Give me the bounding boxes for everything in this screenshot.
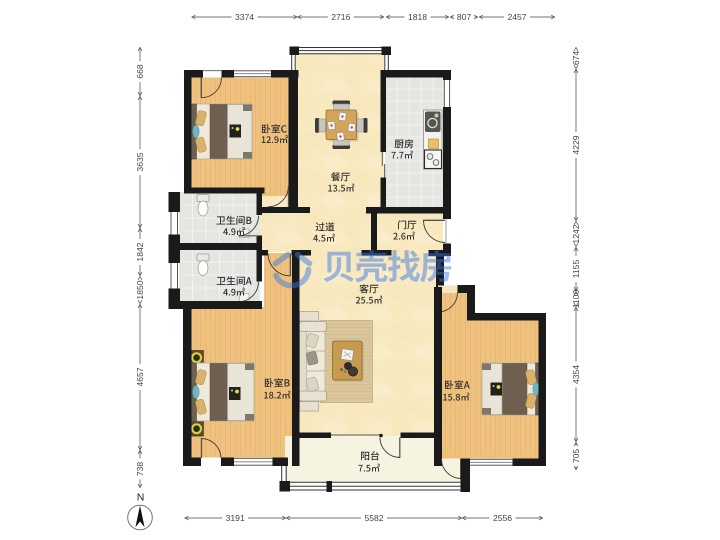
svg-text:3191: 3191	[226, 513, 245, 523]
svg-text:1842: 1842	[135, 242, 145, 261]
svg-text:4229: 4229	[571, 135, 581, 154]
svg-text:N: N	[137, 492, 145, 504]
svg-text:807: 807	[457, 12, 472, 22]
svg-text:4354: 4354	[571, 365, 581, 384]
svg-text:738: 738	[135, 462, 145, 477]
svg-text:2716: 2716	[331, 12, 350, 22]
svg-text:4657: 4657	[135, 367, 145, 386]
svg-text:3635: 3635	[135, 152, 145, 171]
svg-text:2556: 2556	[493, 513, 512, 523]
svg-text:705: 705	[571, 449, 581, 464]
svg-text:1155: 1155	[571, 260, 581, 279]
svg-text:668: 668	[135, 64, 145, 79]
svg-text:1818: 1818	[408, 12, 427, 22]
svg-text:1850: 1850	[135, 280, 145, 299]
svg-text:1242: 1242	[571, 224, 581, 243]
svg-text:1100: 1100	[571, 290, 581, 309]
svg-text:2457: 2457	[507, 12, 526, 22]
svg-text:3374: 3374	[235, 12, 254, 22]
svg-text:674: 674	[571, 51, 581, 66]
svg-text:5582: 5582	[364, 513, 383, 523]
